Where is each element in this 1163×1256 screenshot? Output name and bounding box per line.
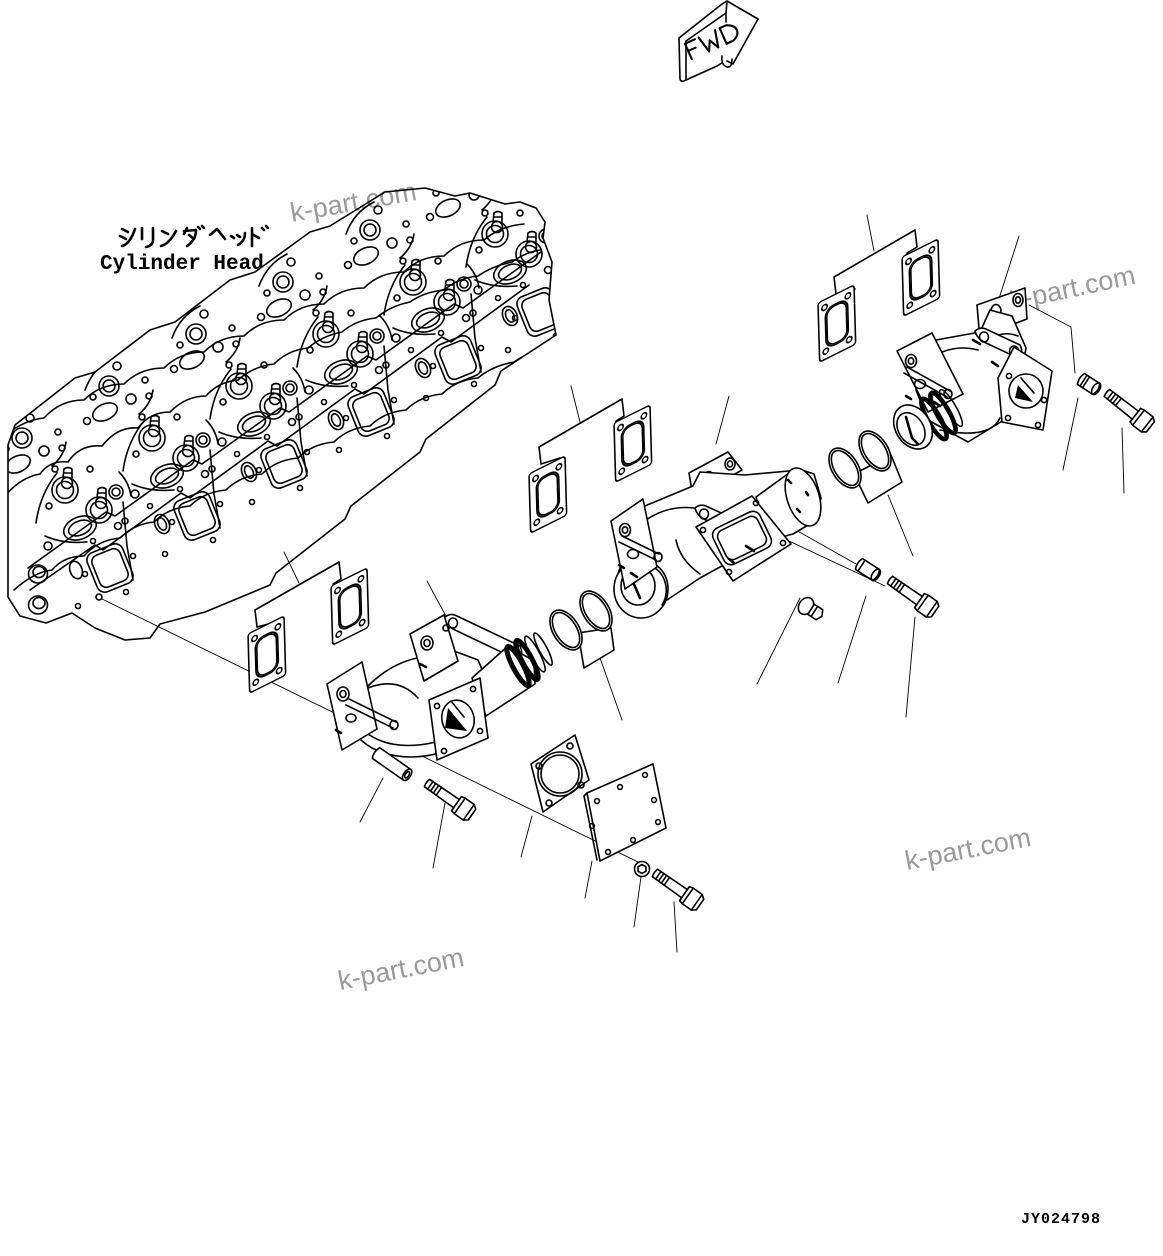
svg-text:JY024798: JY024798 xyxy=(1021,1211,1101,1228)
svg-text:Cylinder Head: Cylinder Head xyxy=(100,253,264,276)
